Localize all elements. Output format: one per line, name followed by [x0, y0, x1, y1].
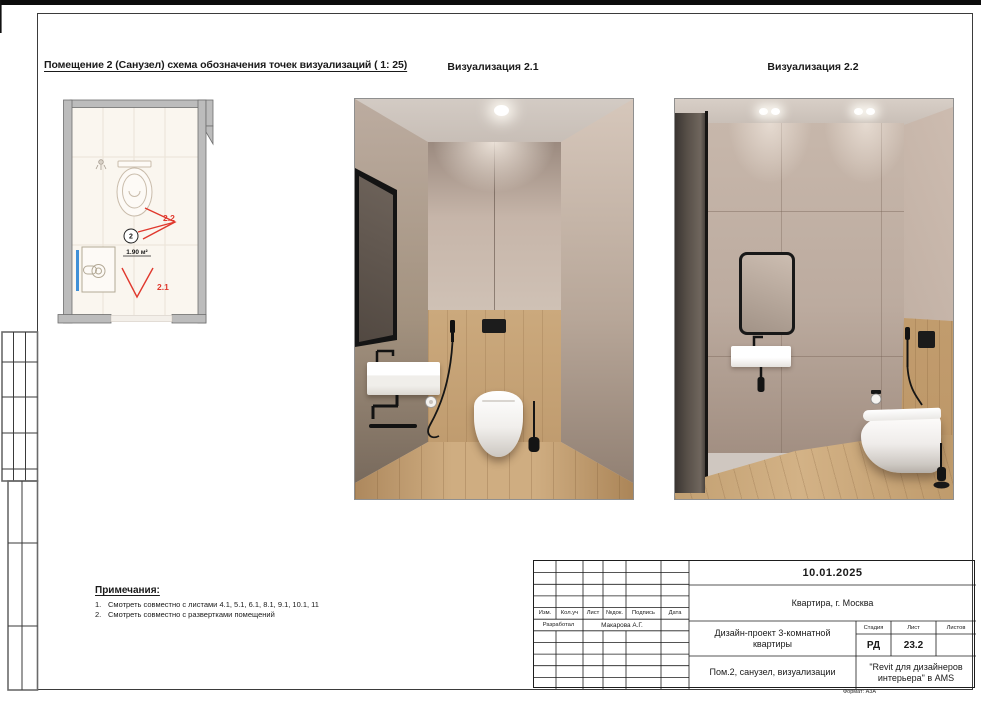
note-item: 1. Смотреть совместно с листами 4.1, 5.1…: [95, 600, 319, 610]
notes-block: Примечания: 1. Смотреть совместно с лист…: [95, 585, 319, 619]
camera-2-2-label: 2.2: [163, 213, 175, 223]
sheet-header: Лист: [891, 621, 936, 634]
camera-2-1-label: 2.1: [157, 282, 169, 292]
sheet-title: Помещение 2 (Санузел) схема обозначения …: [44, 59, 407, 71]
sink-trap-pipe: [373, 395, 398, 419]
paper-roll-core: [429, 400, 433, 404]
sheet-number: 23.2: [891, 634, 936, 656]
developed-label: Разработал: [534, 619, 583, 631]
title-block: Изм. Кол.уч Лист №док. Подпись Дата Разр…: [533, 560, 975, 688]
visualization-2-2-label: Визуализация 2.2: [674, 61, 952, 73]
sink-faucet: [377, 351, 393, 362]
visualization-2-1-label: Визуализация 2.1: [354, 61, 632, 73]
room-area: 1.90 м²: [126, 249, 148, 256]
toilet-brush-cup: [529, 437, 540, 452]
room-number: 2: [129, 234, 133, 241]
plan-door-opening: [111, 316, 172, 322]
object-name: Квартира, г. Москва: [689, 585, 976, 621]
black-fixtures: [355, 99, 633, 499]
col-header-izm: Изм.: [534, 608, 556, 620]
developed-by: Макарова А.Г.: [583, 619, 661, 631]
paper-holder: [871, 390, 881, 394]
sprayer-hose: [428, 342, 452, 437]
note-text: Смотреть совместно с развертками помещен…: [108, 610, 275, 620]
black-fixtures: [675, 99, 953, 499]
paper-roll: [871, 394, 881, 404]
frame-binding-tables: [0, 0, 40, 702]
date-value: 10.01.2025: [689, 561, 976, 585]
toilet-brush-base: [934, 482, 950, 489]
col-header-podpis: Подпись: [626, 608, 661, 620]
sink-symbol: [82, 247, 115, 292]
organization-name: "Revit для дизайнеров интерьера" в AMS: [856, 656, 976, 689]
sheets-total-header: Листов: [936, 621, 976, 634]
col-header-data: Дата: [661, 608, 689, 620]
toilet-brush-cup: [937, 467, 946, 481]
sheets-total-value: [936, 634, 976, 656]
col-header-koluch: Кол.уч: [556, 608, 583, 620]
col-header-list: Лист: [583, 608, 603, 620]
sprayer-hose: [908, 367, 923, 405]
stage-header: Стадия: [856, 621, 891, 634]
visualization-2-2-image: [674, 98, 954, 500]
note-number: 1.: [95, 600, 108, 610]
sheet-name: Пом.2, санузел, визуализации: [694, 656, 851, 689]
drawing-sheet: Помещение 2 (Санузел) схема обозначения …: [0, 0, 981, 702]
plan-blue-element: [76, 250, 79, 291]
top-black-bar: [0, 0, 981, 5]
format-note: Формат: А3А: [843, 689, 876, 695]
note-text: Смотреть совместно с листами 4.1, 5.1, 6…: [108, 600, 319, 610]
stage-value: РД: [856, 634, 891, 656]
visualization-2-1-image: [354, 98, 634, 500]
sink-faucet: [754, 337, 763, 346]
sprayer-holder: [450, 320, 455, 333]
project-name: Дизайн-проект 3-комнатной квартиры: [694, 621, 851, 656]
notes-heading: Примечания:: [95, 585, 319, 596]
col-header-ndok: №док.: [603, 608, 626, 620]
bottle-trap: [758, 377, 765, 392]
hand-sprayer: [905, 327, 910, 340]
note-item: 2. Смотреть совместно с развертками поме…: [95, 610, 319, 620]
floor-plan: 2.2 2.1 2 1.90 м²: [57, 98, 215, 333]
note-number: 2.: [95, 610, 108, 620]
